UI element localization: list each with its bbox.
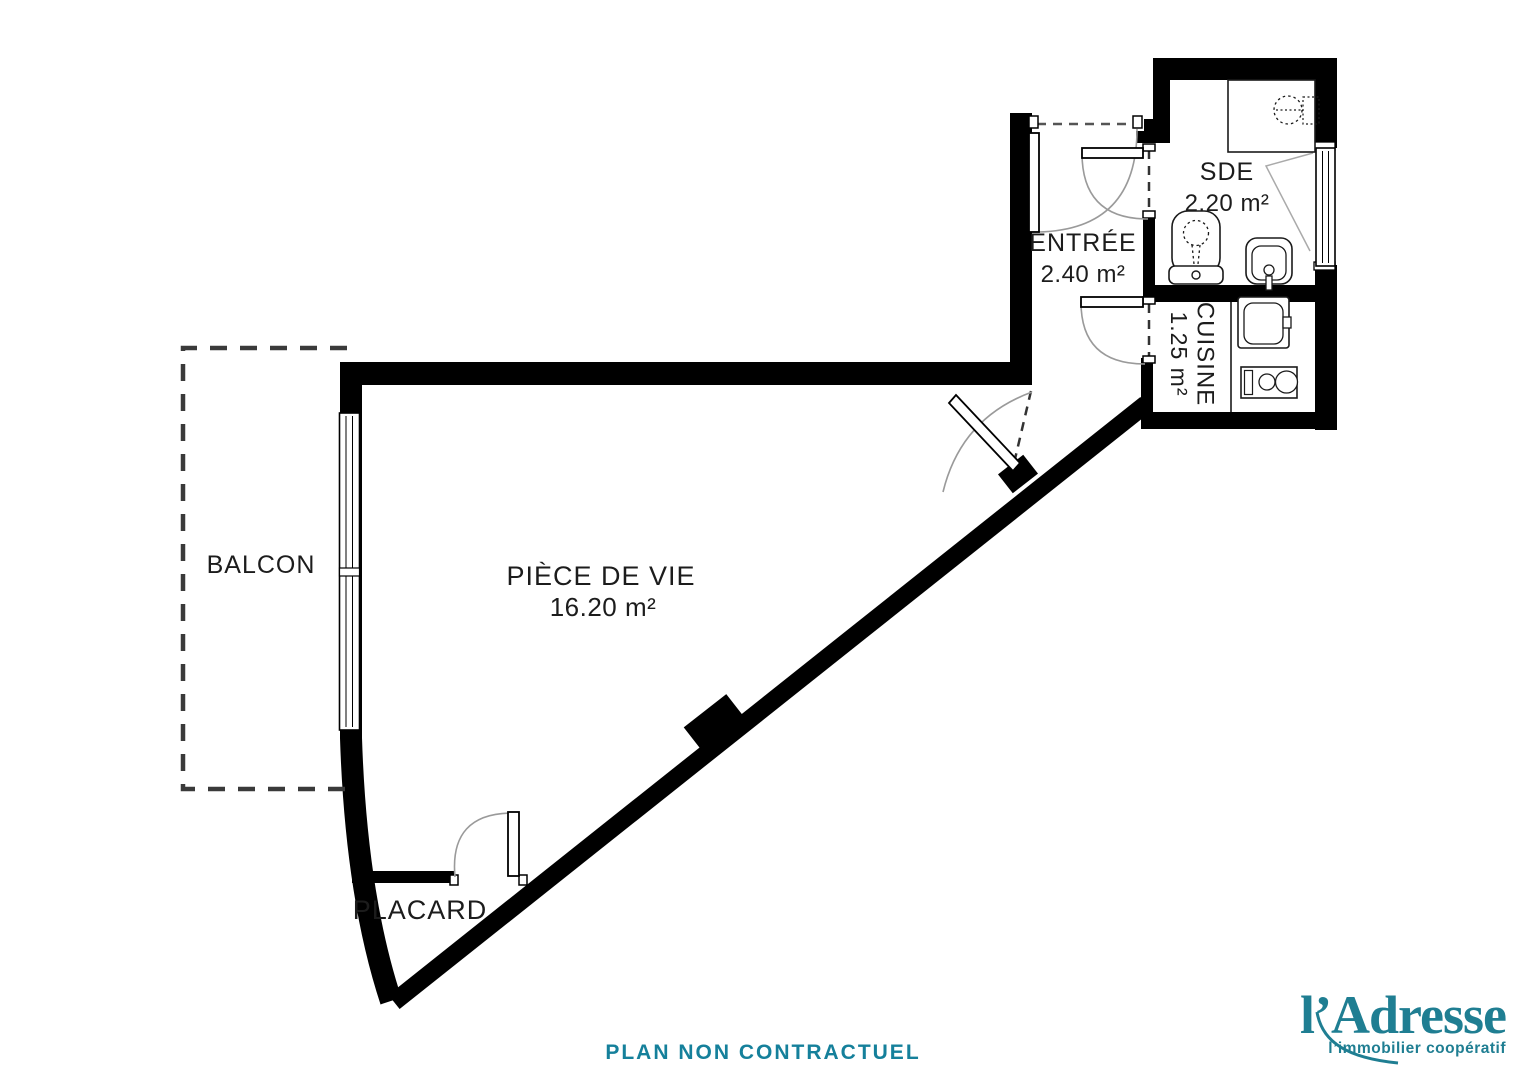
logo-tagline: l’immobilier coopératif — [1328, 1040, 1506, 1057]
entry-door-leaf — [1029, 133, 1039, 232]
placard-door-leaf — [508, 812, 519, 876]
window-sde-wall — [1314, 142, 1335, 270]
toilet-icon — [1169, 211, 1223, 284]
window-left-wall — [340, 413, 360, 730]
shower-icon — [1228, 80, 1319, 152]
label-piece-de-vie-area: 16.20 m² — [550, 592, 657, 622]
label-sde-area: 2.20 m² — [1185, 190, 1270, 217]
shower-door — [1266, 153, 1313, 251]
piece-de-vie-door-leaf — [949, 395, 1020, 471]
agency-logo: l’Adresse l’immobilier coopératif — [1300, 985, 1506, 1063]
wall-cuisine-bottom — [1141, 412, 1337, 429]
label-placard: PLACARD — [353, 895, 488, 925]
sde-door-arc — [1082, 153, 1148, 219]
cuisine-door-leaf — [1081, 297, 1143, 307]
label-sde: SDE — [1200, 158, 1254, 186]
label-cuisine-area: 1.25 m² — [1166, 312, 1192, 397]
wall-diagonal — [394, 404, 1146, 1002]
cuisine-door-arc — [1081, 302, 1145, 364]
plan-disclaimer: PLAN NON CONTRACTUEL — [605, 1041, 920, 1064]
wall-sde-entree — [1143, 213, 1155, 289]
wall-placard — [352, 871, 454, 883]
floor-plan-drawing: BALCON PIÈCE DE VIE 16.20 m² PLACARD ENT… — [0, 0, 1528, 1080]
label-piece-de-vie: PIÈCE DE VIE — [506, 561, 695, 591]
sde-door-leaf — [1082, 148, 1143, 158]
wall-sde-cuisine — [1143, 285, 1317, 302]
label-entree: ENTRÉE — [1029, 228, 1136, 257]
logo-text: l’Adresse — [1300, 985, 1506, 1045]
wall-right-lower — [1315, 265, 1337, 430]
washbasin-icon — [1246, 238, 1292, 290]
opening-piece-de-vie — [1015, 391, 1031, 459]
cooktop-icon — [1241, 367, 1298, 398]
label-cuisine: CUISINE — [1192, 302, 1219, 406]
floor-plan-page: BALCON PIÈCE DE VIE 16.20 m² PLACARD ENT… — [0, 0, 1528, 1080]
label-balcon: BALCON — [207, 551, 316, 579]
wall-right-upper — [1315, 58, 1337, 148]
label-entree-area: 2.40 m² — [1041, 261, 1126, 288]
wall-top-piece-de-vie — [340, 362, 1032, 385]
placard-door-arc — [454, 813, 513, 877]
kitchen-sink-icon — [1238, 297, 1291, 348]
wall-sde-top — [1153, 58, 1337, 80]
